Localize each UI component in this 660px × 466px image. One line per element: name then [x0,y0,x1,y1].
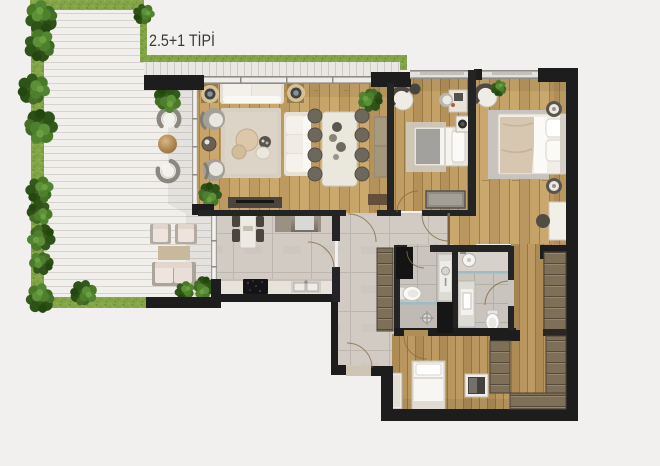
svg-text:2.5+1 TİPİ: 2.5+1 TİPİ [149,31,215,50]
